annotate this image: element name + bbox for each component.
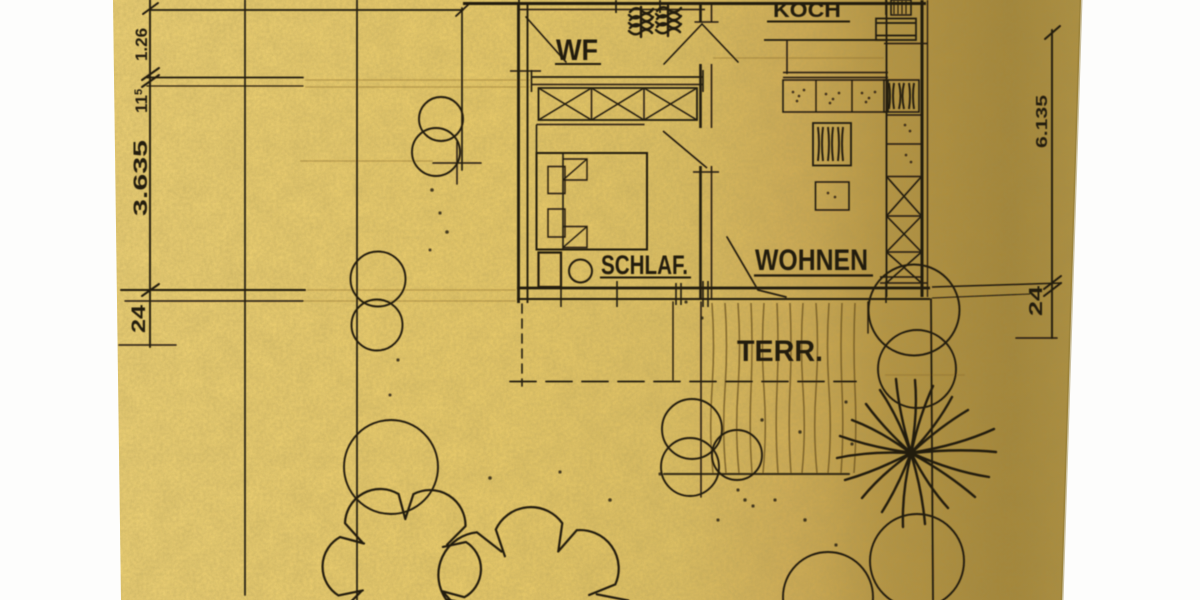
svg-text:WF: WF bbox=[556, 34, 598, 67]
svg-text:1.26: 1.26 bbox=[132, 28, 151, 61]
svg-text:SCHLAF.: SCHLAF. bbox=[601, 250, 688, 280]
svg-text:TERR.: TERR. bbox=[737, 335, 823, 368]
svg-text:WOHNEN: WOHNEN bbox=[755, 244, 868, 277]
svg-text:24: 24 bbox=[1026, 286, 1046, 316]
svg-text:6.135: 6.135 bbox=[1034, 94, 1051, 148]
svg-text:24: 24 bbox=[129, 304, 150, 333]
svg-text:3.635: 3.635 bbox=[131, 139, 152, 216]
svg-text:KOCH: KOCH bbox=[773, 0, 841, 22]
